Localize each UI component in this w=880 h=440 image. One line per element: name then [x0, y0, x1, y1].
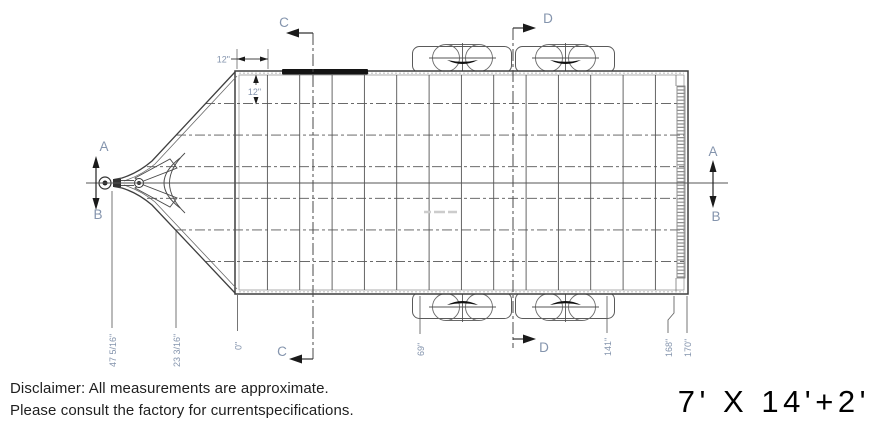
section-marker-ab-right: A B	[708, 144, 720, 224]
dim-12-vertical-label: 12"	[248, 87, 261, 97]
section-d-bottom-label: D	[539, 340, 549, 355]
trailer-top-view-drawing: C C D D A B A B 12"	[0, 0, 880, 440]
trailer-size-label: 7' X 14'+2'	[678, 384, 870, 420]
tongue-assembly	[99, 72, 237, 293]
dim-arrow-left-icon	[237, 57, 245, 62]
fender	[413, 47, 512, 73]
station-label: 0"	[234, 342, 244, 350]
station-label: 23 3/16"	[172, 334, 182, 367]
disclaimer-text: Disclaimer: All measurements are approxi…	[10, 378, 354, 422]
station-dimension-labels: 47 5/16" 23 3/16" 0" 69" 141" 168" 170"	[108, 334, 693, 367]
dimension-rail-setback: 12"	[217, 49, 268, 69]
station-label: 47 5/16"	[108, 334, 118, 367]
station-label: 69"	[416, 343, 426, 356]
section-d-top-label: D	[543, 11, 553, 26]
dim-arrow-right-icon	[260, 57, 268, 62]
station-label: 170"	[683, 339, 693, 357]
section-b-right-label: B	[711, 209, 720, 224]
section-c-bottom-label: C	[277, 344, 287, 359]
trailer-spec-sheet: C C D D A B A B 12"	[0, 0, 880, 440]
section-arrow-up-icon	[710, 160, 717, 172]
section-arrow-right-icon	[523, 24, 536, 33]
section-c-top-label: C	[279, 15, 289, 30]
station-label: 168"	[664, 339, 674, 357]
section-a-right-label: A	[708, 144, 717, 159]
dim-12-horizontal-label: 12"	[217, 55, 230, 65]
section-arrow-right-icon	[523, 335, 536, 344]
section-b-left-label: B	[93, 207, 102, 222]
fender	[516, 47, 615, 73]
station-label: 141"	[603, 338, 613, 356]
fender	[413, 293, 512, 319]
section-arrow-left-icon	[289, 355, 302, 364]
fender	[516, 293, 615, 319]
trailer-bed	[147, 69, 688, 294]
section-arrow-down-icon	[710, 196, 717, 208]
section-arrow-up-icon	[93, 156, 100, 168]
section-a-left-label: A	[99, 139, 108, 154]
disclaimer-line-2: Please consult the factory for currentsp…	[10, 400, 354, 422]
rub-rail-bar	[282, 69, 368, 75]
disclaimer-line-1: Disclaimer: All measurements are approxi…	[10, 378, 354, 400]
